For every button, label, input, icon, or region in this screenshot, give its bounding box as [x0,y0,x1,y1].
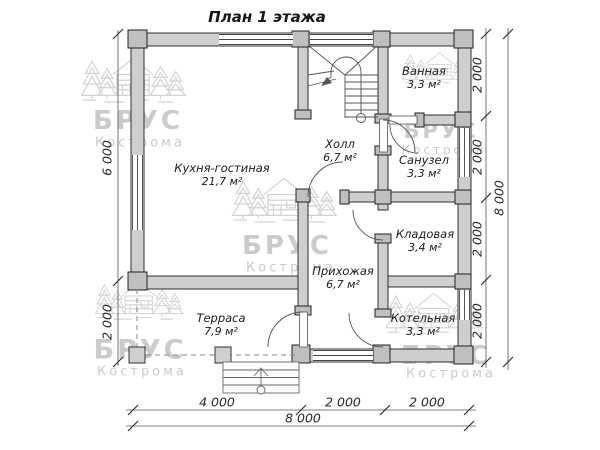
room-label-boiler: Котельная 3,3 м² [391,312,456,338]
room-label-terrace: Терраса 7,9 м² [196,312,245,338]
staircase [308,46,378,123]
door-arc-hall [308,162,343,197]
plan-title: План 1 этажа [208,8,326,26]
dim-left-lower: 2 000 [100,304,115,340]
entry-steps [223,362,299,394]
terrace-post [215,347,231,363]
room-label-kitchen-living: Кухня-гостиная 21,7 м² [174,162,269,188]
dim-bottom-seg-2: 2 000 [325,395,361,410]
room-label-bathroom: Ванная 3,3 м² [402,65,446,91]
room-label-wc: Санузел 3,3 м² [399,154,449,180]
dim-bottom-seg-1: 4 000 [199,395,235,410]
stair-direction-arrow [321,77,332,86]
door-arc-bathroom [390,125,418,153]
floor-plan-page: БРУС Кострома БРУС Кострома БРУС Костром… [0,0,600,450]
door-arc-terrace [268,312,303,347]
dim-bottom-seg-3: 2 000 [409,395,445,410]
dim-right-seg-1: 2 000 [470,57,485,93]
dim-bottom-total: 8 000 [285,411,321,426]
dim-right-seg-2: 2 000 [470,139,485,175]
room-label-hall: Холл 6,7 м² [323,138,357,164]
dim-right-seg-3: 2 000 [470,221,485,257]
terrace-post [129,347,145,363]
room-label-storage: Кладовая 3,4 м² [396,228,454,254]
door-arc-boiler [349,313,383,347]
dim-right-seg-4: 2 000 [470,303,485,339]
dim-right-total: 8 000 [492,180,507,216]
dim-left-upper: 6 000 [100,140,115,176]
floor-plan-drawing [0,0,600,450]
room-label-entry-hall: Прихожая 6,7 м² [312,265,374,291]
